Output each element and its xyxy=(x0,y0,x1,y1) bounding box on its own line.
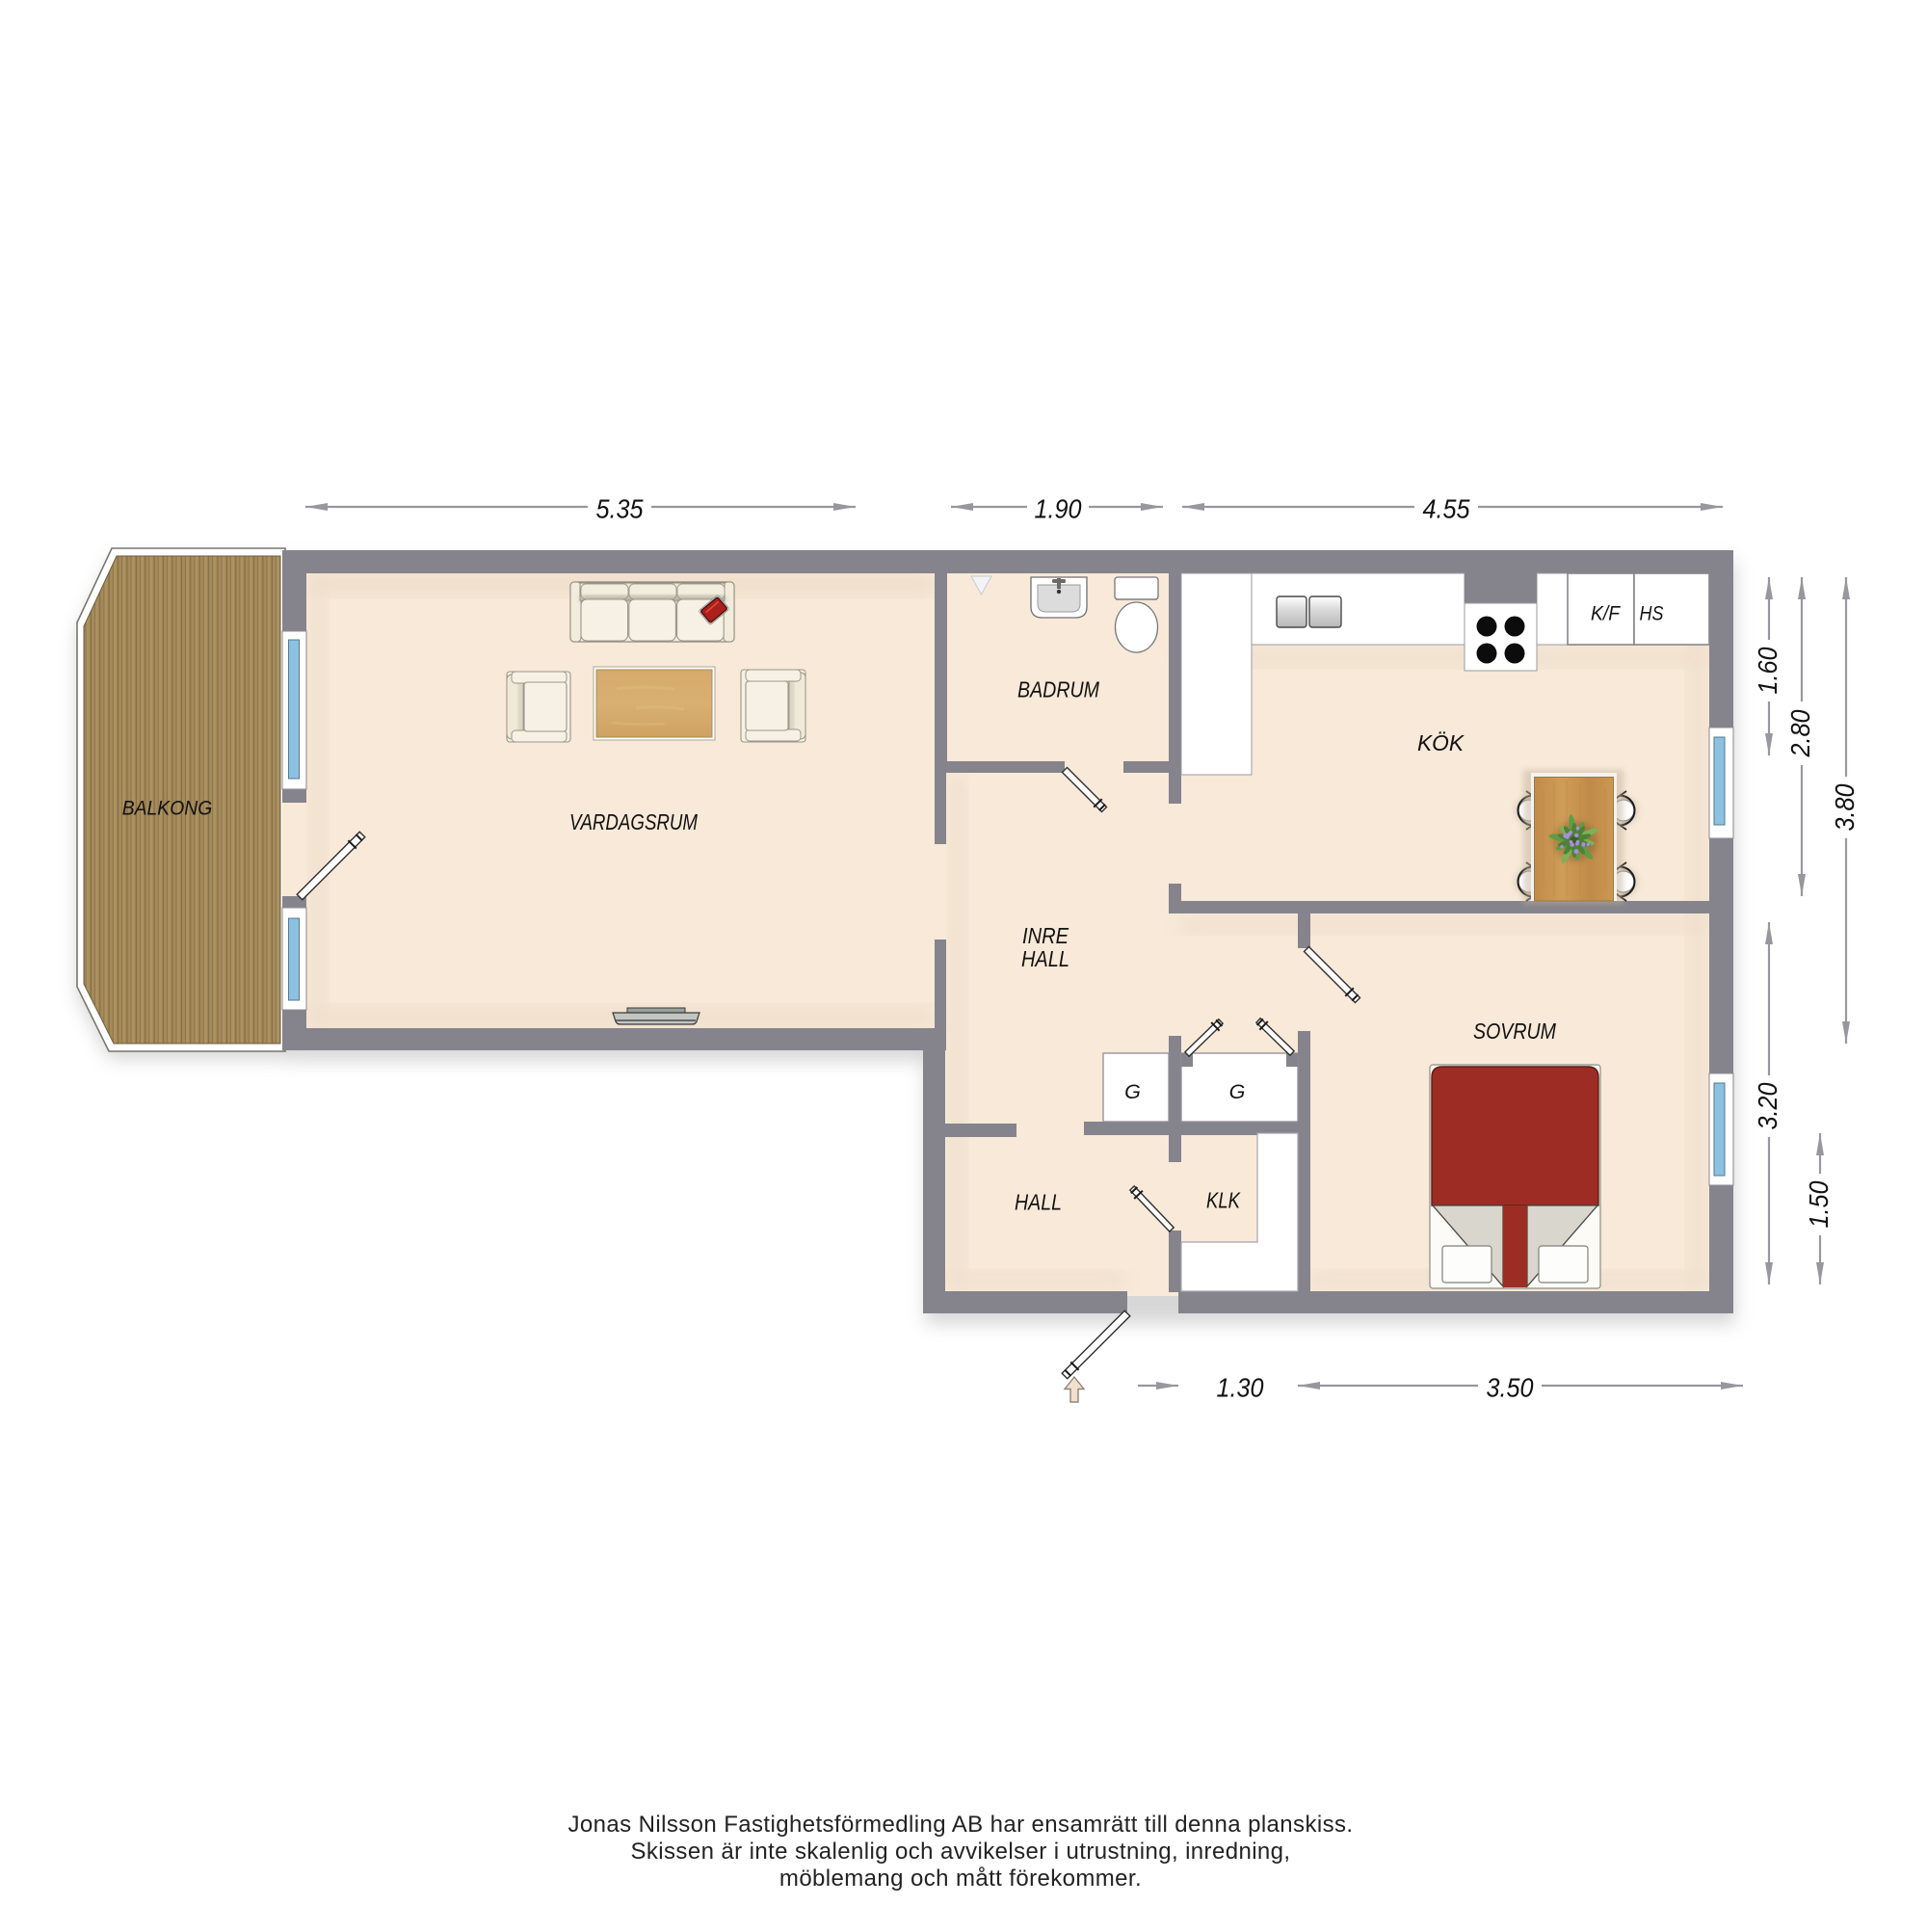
svg-text:G: G xyxy=(1124,1080,1141,1103)
svg-text:1.30: 1.30 xyxy=(1217,1373,1264,1403)
svg-text:5.35: 5.35 xyxy=(596,494,644,524)
svg-text:KLK: KLK xyxy=(1206,1188,1241,1213)
svg-text:INRE: INRE xyxy=(1022,923,1069,948)
svg-text:SOVRUM: SOVRUM xyxy=(1473,1019,1556,1044)
svg-text:HALL: HALL xyxy=(1015,1190,1062,1215)
svg-text:3.20: 3.20 xyxy=(1753,1082,1782,1129)
svg-text:1.60: 1.60 xyxy=(1753,647,1782,694)
svg-text:K/F: K/F xyxy=(1591,602,1622,625)
svg-text:BALKONG: BALKONG xyxy=(122,797,213,820)
svg-text:HALL: HALL xyxy=(1021,946,1069,971)
svg-text:3.80: 3.80 xyxy=(1830,783,1860,831)
svg-text:HS: HS xyxy=(1640,602,1665,625)
svg-text:1.90: 1.90 xyxy=(1035,494,1082,524)
svg-text:KÖK: KÖK xyxy=(1417,730,1465,755)
svg-text:3.50: 3.50 xyxy=(1487,1373,1534,1403)
svg-text:G: G xyxy=(1229,1080,1246,1103)
svg-text:2.80: 2.80 xyxy=(1785,709,1815,757)
svg-text:4.55: 4.55 xyxy=(1423,494,1470,524)
svg-text:Skissen är inte skalenlig och: Skissen är inte skalenlig och avvikelser… xyxy=(630,1839,1290,1865)
svg-text:1.50: 1.50 xyxy=(1804,1180,1834,1228)
svg-text:Jonas Nilsson Fastighetsförmed: Jonas Nilsson Fastighetsförmedling AB ha… xyxy=(568,1812,1354,1838)
svg-text:BADRUM: BADRUM xyxy=(1017,677,1099,702)
svg-text:VARDAGSRUM: VARDAGSRUM xyxy=(569,809,698,834)
svg-text:möblemang och mått förekommer.: möblemang och mått förekommer. xyxy=(779,1866,1142,1892)
